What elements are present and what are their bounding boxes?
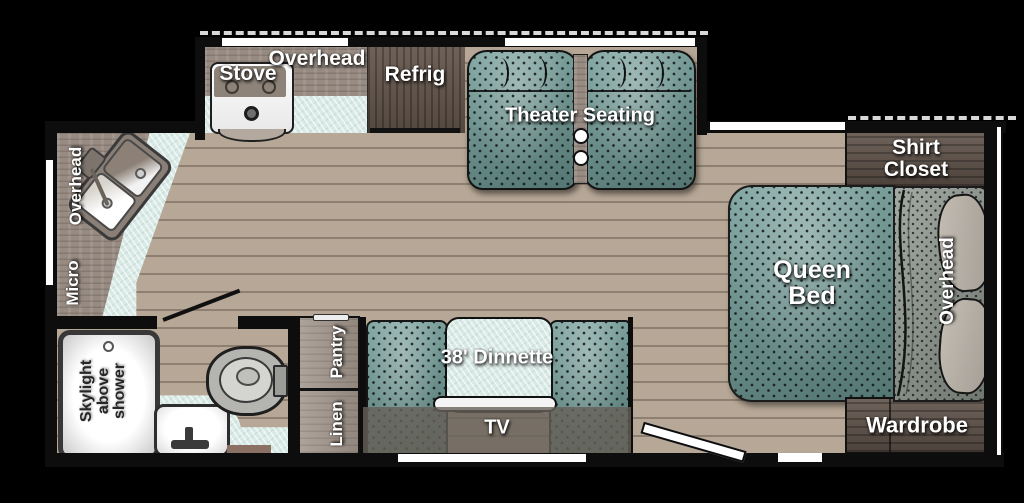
shower-drain [103, 341, 114, 352]
backrest-seam-curve [610, 58, 626, 88]
window [222, 38, 348, 46]
window [710, 122, 845, 130]
bathroom-faucet-bar [171, 440, 209, 449]
stove-label: Stove [219, 63, 276, 85]
dinette-label: 38' Dinnette [441, 348, 554, 369]
shirt-closet-label: Shirt Closet [884, 137, 948, 181]
skylight-shower-label: Skylight above shower [79, 360, 129, 422]
theater-seating-label: Theater Seating [505, 106, 655, 127]
backrest-seam-curve [531, 58, 547, 88]
refrigerator-cabinet [367, 46, 465, 133]
comforter-fold-line [888, 182, 928, 402]
wardrobe-label: Wardrobe [866, 415, 968, 438]
linen-label: Linen [328, 401, 346, 446]
cup-holder [573, 128, 589, 144]
pantry-linen-divider [299, 388, 359, 391]
refrig-label: Refrig [385, 64, 446, 86]
bathroom-wall-right [288, 316, 300, 455]
stove-knob [244, 106, 259, 121]
queen-bed-label: Queen Bed [773, 257, 851, 309]
wall-top-left [45, 121, 197, 133]
refrigerator-base-line [370, 128, 460, 133]
toilet-tank [273, 365, 288, 397]
toilet-drain [236, 367, 260, 386]
window [46, 160, 53, 285]
seat-backrest-seam [469, 90, 573, 92]
window [778, 453, 822, 462]
tv-label: TV [484, 418, 510, 439]
pantry-label: Pantry [328, 326, 346, 379]
floorplan-canvas: Overhead Stove Refrig Theater Seating Sh… [0, 0, 1024, 503]
bedroom-overhead-label: Overhead [938, 237, 958, 325]
awning-dashed-line-top [200, 31, 708, 35]
window [505, 38, 695, 46]
toilet-icon [206, 346, 288, 416]
seat-backrest-seam [586, 90, 690, 92]
left-overhead-label: Overhead [67, 147, 85, 225]
wall-right-outer-line [1001, 127, 1003, 455]
window [398, 454, 586, 462]
backrest-seam-curve [493, 58, 509, 88]
bath-mat [227, 445, 271, 453]
pantry-handle [313, 314, 349, 321]
awning-dashed-line-right [848, 116, 1016, 120]
micro-label: Micro [64, 260, 82, 305]
bathroom-wall-top-left [45, 316, 157, 329]
kitchen-overhead-label: Overhead [269, 48, 366, 70]
wall-right [984, 121, 998, 467]
cup-holder [573, 150, 589, 166]
backrest-seam-curve [648, 58, 664, 88]
